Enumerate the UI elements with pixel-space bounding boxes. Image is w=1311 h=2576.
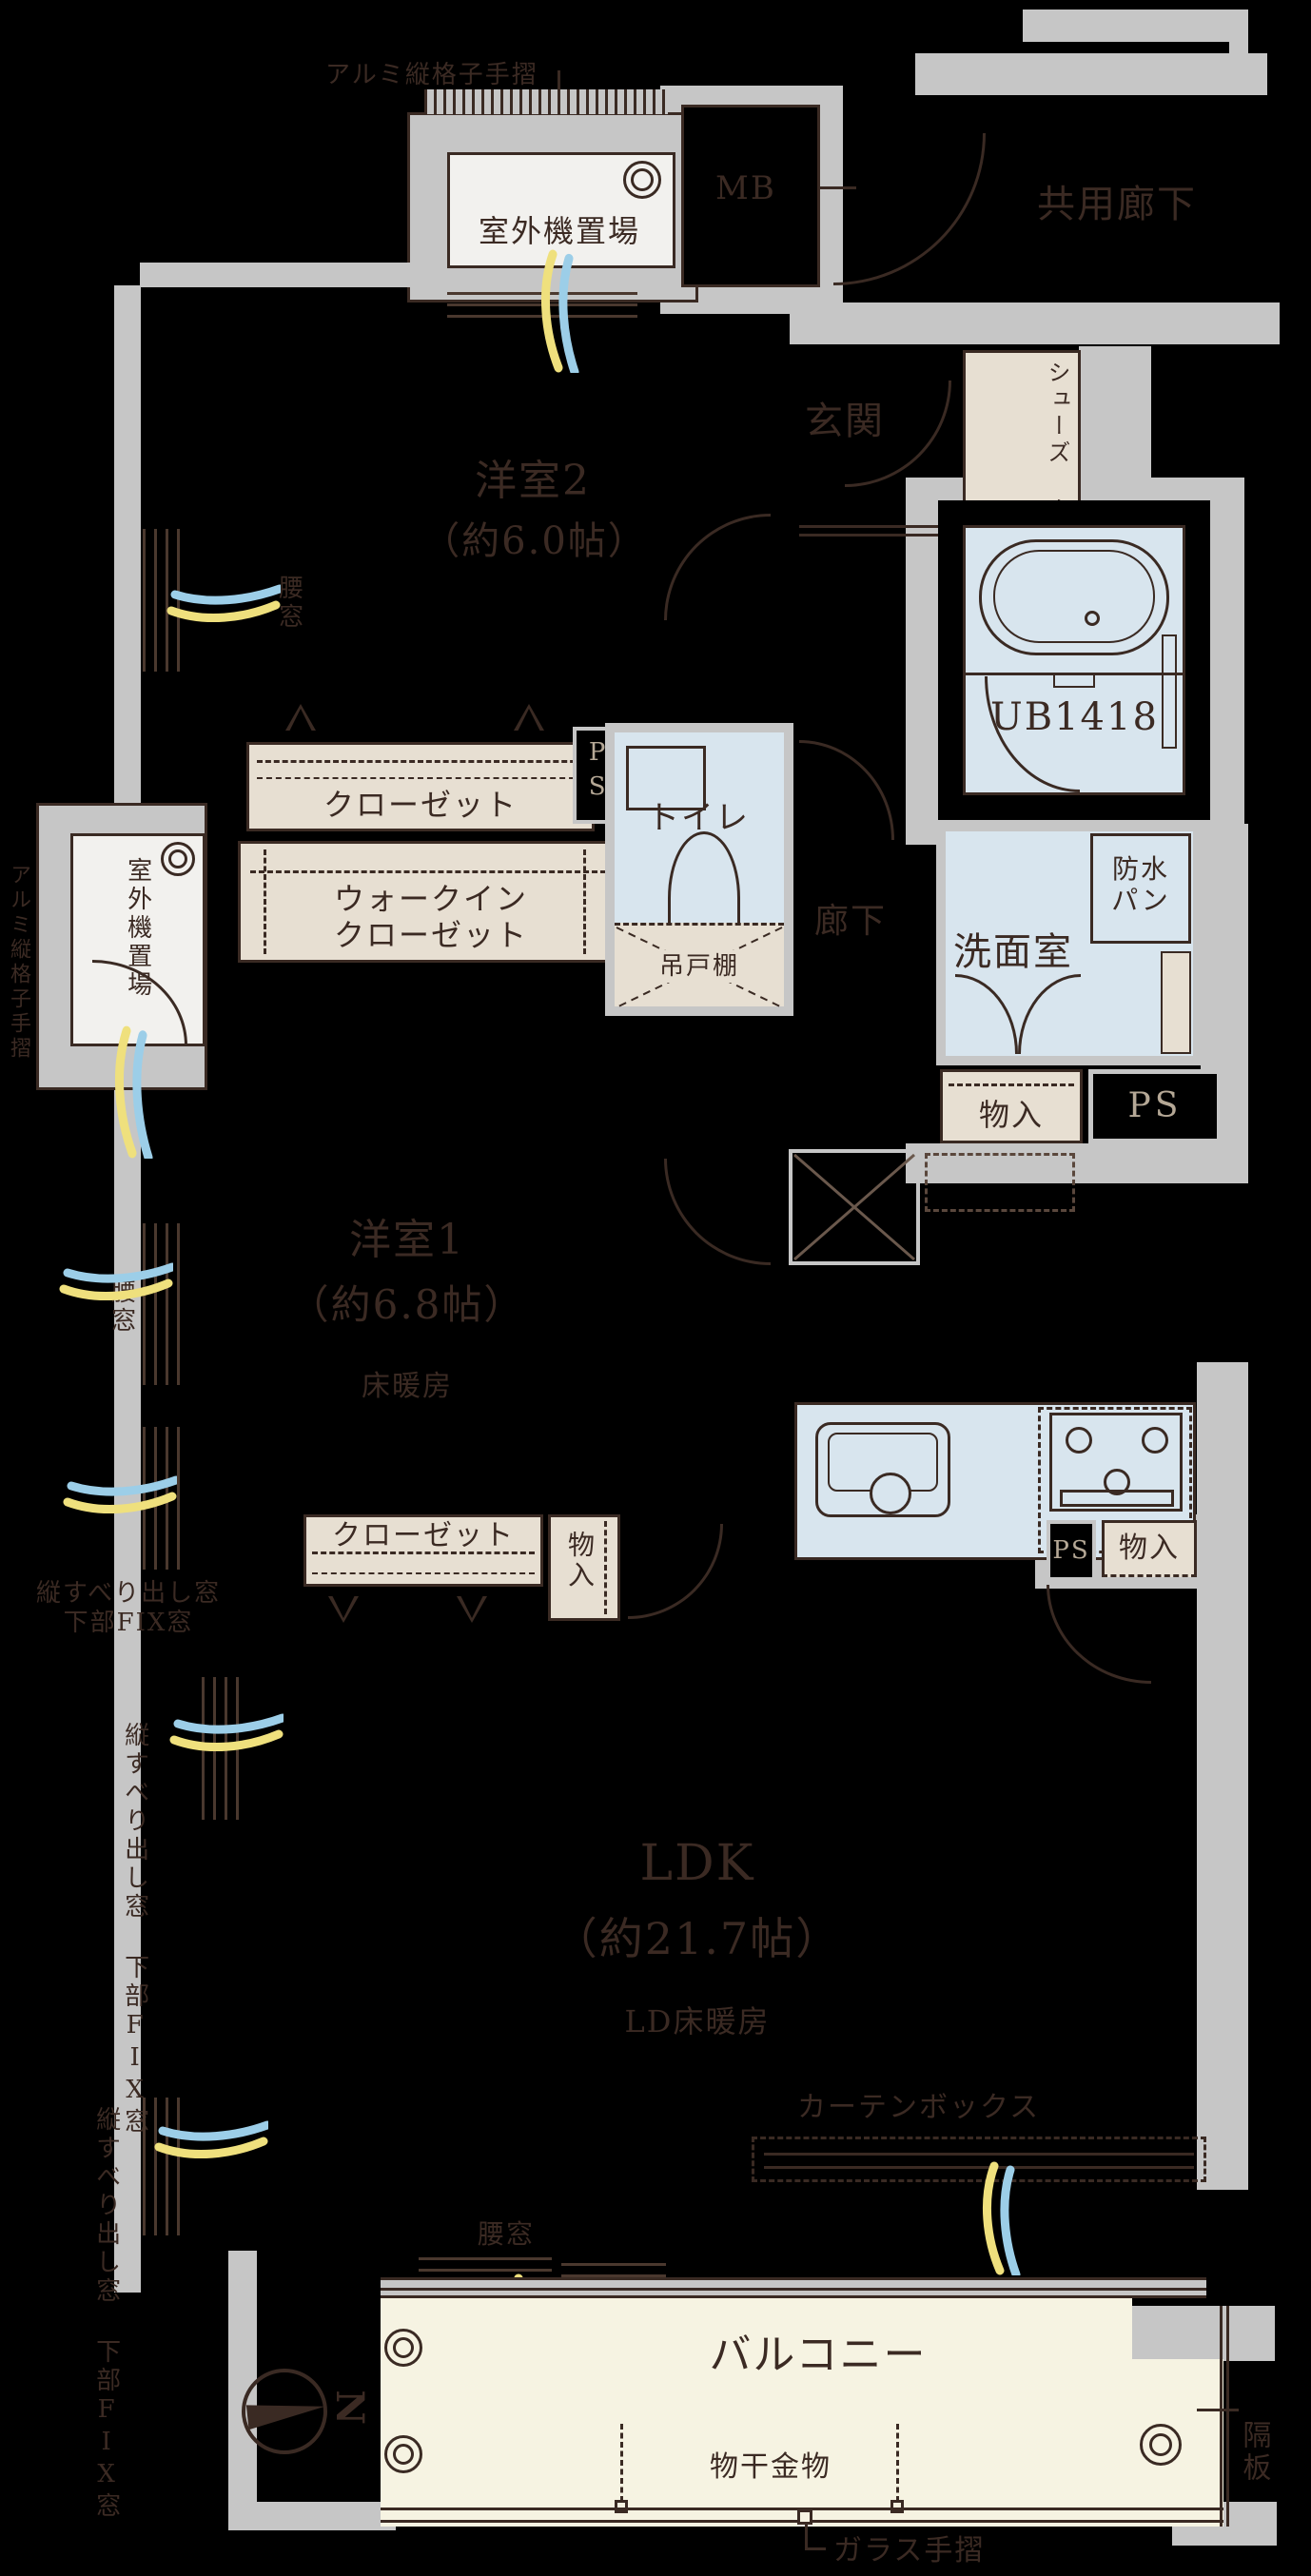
aluminum-rail-left-label: アルミ縦格子手摺: [6, 864, 30, 1140]
hanging-shelf: 吊戸棚: [615, 923, 784, 1006]
pipe-space-washroom: PS: [1088, 1069, 1222, 1143]
wall-room2-top: [140, 263, 425, 287]
wall-right-column: [1197, 1362, 1248, 2190]
room1-name: 洋室1: [312, 1214, 502, 1267]
entrance-door-arc: [845, 381, 951, 487]
curtain-box: [752, 2137, 1206, 2182]
kitchen-sink-icon: [815, 1422, 950, 1517]
drying-fixture-label: 物干金物: [675, 2449, 866, 2487]
folding-door-icon: [514, 704, 544, 731]
drying-hook-icon: [896, 2424, 899, 2502]
wall-balcony-left-h: [228, 2502, 396, 2530]
room1-size: （約6.8帖）: [264, 1280, 550, 1330]
balcony-sliding-doors: [381, 2277, 1206, 2298]
balcony-label: バルコニー: [666, 2329, 970, 2382]
airflow-icon: [95, 1225, 137, 1339]
waist-window-label-room2: 腰窓: [274, 575, 303, 651]
bathtub-icon: [979, 539, 1169, 655]
partition-board-leader: [1197, 2409, 1239, 2411]
storage-room1: 物入: [548, 1514, 620, 1621]
outdoor-unit-left: 室外機置場: [70, 833, 205, 1046]
waist-window-label-ldk: 腰窓: [478, 2218, 535, 2250]
window-type-label-2: 縦すべり出し窓 下部FIX窓: [120, 1722, 149, 1988]
compass-north-label: N: [327, 2390, 372, 2427]
glass-rail-label: ガラス手摺: [833, 2534, 985, 2567]
wall-top-bar: [1023, 10, 1242, 42]
storage-room1-label: 物入: [564, 1531, 596, 1610]
vanity-counter: [1161, 951, 1191, 1054]
room2-door-arc: [664, 514, 771, 620]
room2-size: （約6.0帖）: [392, 517, 677, 567]
window-type-label-1: 縦すべり出し窓 下部FIX窓: [19, 1579, 238, 1637]
shaft-dashed-zone: [925, 1153, 1075, 1212]
washroom-door-right-arc: [1018, 974, 1081, 1054]
closet-lower-label: クローゼット: [306, 1519, 540, 1553]
bath-mirror-strip: [1162, 634, 1177, 749]
ldk-name: LDK: [583, 1836, 812, 1893]
pipe-space-label: PS: [1050, 1524, 1092, 1577]
room1-floor-heating: 床暖房: [336, 1368, 479, 1406]
folding-door-icon: [457, 1596, 487, 1623]
window-type-label-3: 縦すべり出し窓 下部FIX窓: [91, 2106, 121, 2353]
walk-in-closet-label: ウォークイン クローゼット: [307, 882, 555, 954]
closet-upper: クローゼット: [246, 742, 595, 831]
glass-rail-leader-h: [805, 2547, 826, 2550]
walk-in-closet: ウォークイン クローゼット: [238, 841, 618, 963]
kitchen-stove-icon: [1049, 1413, 1183, 1512]
washroom-door-left-arc: [955, 974, 1018, 1054]
drying-hook-icon: [620, 2424, 623, 2502]
glass-rail-node: [797, 2509, 812, 2525]
airflow-icon: [205, 1676, 247, 1790]
airflow-icon: [99, 1438, 141, 1552]
airflow-icon: [203, 547, 245, 661]
drain-icon: [1140, 2424, 1182, 2466]
aluminum-rail-top-label: アルミ縦格子手摺: [325, 61, 538, 90]
bath-room: UB1418: [963, 525, 1185, 795]
airflow-icon: [112, 1025, 154, 1159]
airflow-icon: [538, 249, 580, 373]
kitchen-storage-door-arc: [1047, 1585, 1151, 1684]
closet-upper-label: クローゼット: [249, 785, 592, 827]
waterproof-pan: 防水 パン: [1090, 833, 1191, 944]
toilet-room: トイレ 吊戸棚: [605, 723, 793, 1016]
storage-room1-door-arc: [628, 1524, 723, 1619]
drain-icon: [623, 161, 661, 199]
closet-lower: クローゼット: [303, 1514, 543, 1587]
wall-balcony-top-right: [1130, 2306, 1275, 2361]
ldk-window-lower: [143, 2098, 181, 2235]
waterproof-pan-label: 防水 パン: [1106, 853, 1175, 916]
storage-kitchen-label: 物入: [1105, 1523, 1194, 1574]
partition-board-line: [1220, 2306, 1229, 2527]
hanging-shelf-label: 吊戸棚: [637, 950, 761, 983]
storage-washroom: 物入: [940, 1069, 1083, 1143]
curtain-box-label: カーテンボックス: [797, 2091, 1040, 2124]
glass-rail-leader-v: [805, 2525, 808, 2549]
folding-door-icon: [328, 1596, 359, 1623]
toilet-door-arc: [799, 740, 894, 840]
storage-kitchen: 物入: [1102, 1520, 1197, 1577]
room1-window-upper: [143, 1223, 181, 1385]
ldk-step-hatch: [561, 2256, 666, 2277]
storage-washroom-label: 物入: [943, 1093, 1080, 1139]
ldk-floor-heating: LD床暖房: [583, 2001, 812, 2043]
toilet-bowl-icon: [668, 831, 740, 934]
aluminum-rail-top-leader: [558, 70, 560, 93]
washroom: 防水 パン 洗面室: [936, 822, 1203, 1065]
drain-icon: [384, 2435, 422, 2473]
bath-door-arc: [985, 676, 1080, 792]
hallway-label: 廊下: [814, 902, 887, 942]
airflow-icon: [190, 2083, 232, 2197]
drain-icon: [161, 842, 195, 876]
washroom-label: 洗面室: [953, 930, 1073, 975]
common-corridor-label: 共用廊下: [1037, 183, 1197, 227]
ldk-size: （約21.7帖）: [526, 1910, 869, 1967]
outdoor-unit-top-label: 室外機置場: [479, 214, 640, 250]
room2-name: 洋室2: [438, 455, 628, 508]
drain-icon: [384, 2329, 422, 2367]
partition-board-label: 隔板: [1237, 2420, 1270, 2496]
pipe-space-kitchen: PS: [1047, 1520, 1096, 1581]
corridor-door-arc: [833, 133, 986, 285]
folding-door-icon: [285, 704, 316, 731]
duct-shaft: [789, 1149, 920, 1265]
compass-icon: [242, 2369, 327, 2454]
floor-plan: 共用廊下 MB 玄関 シューズ クローゼット アルミ縦格子手摺 室外機置場 洋室…: [0, 0, 1311, 2576]
airflow-icon: [980, 2161, 1022, 2275]
meter-box-label: MB: [715, 169, 776, 207]
lattice-grille-top: [424, 89, 668, 114]
wall-corridor-bottom: [790, 302, 1280, 344]
wall-corridor-top: [915, 53, 1267, 95]
pipe-space-label: PS: [1093, 1074, 1217, 1139]
room1-door-arc: [664, 1159, 771, 1265]
